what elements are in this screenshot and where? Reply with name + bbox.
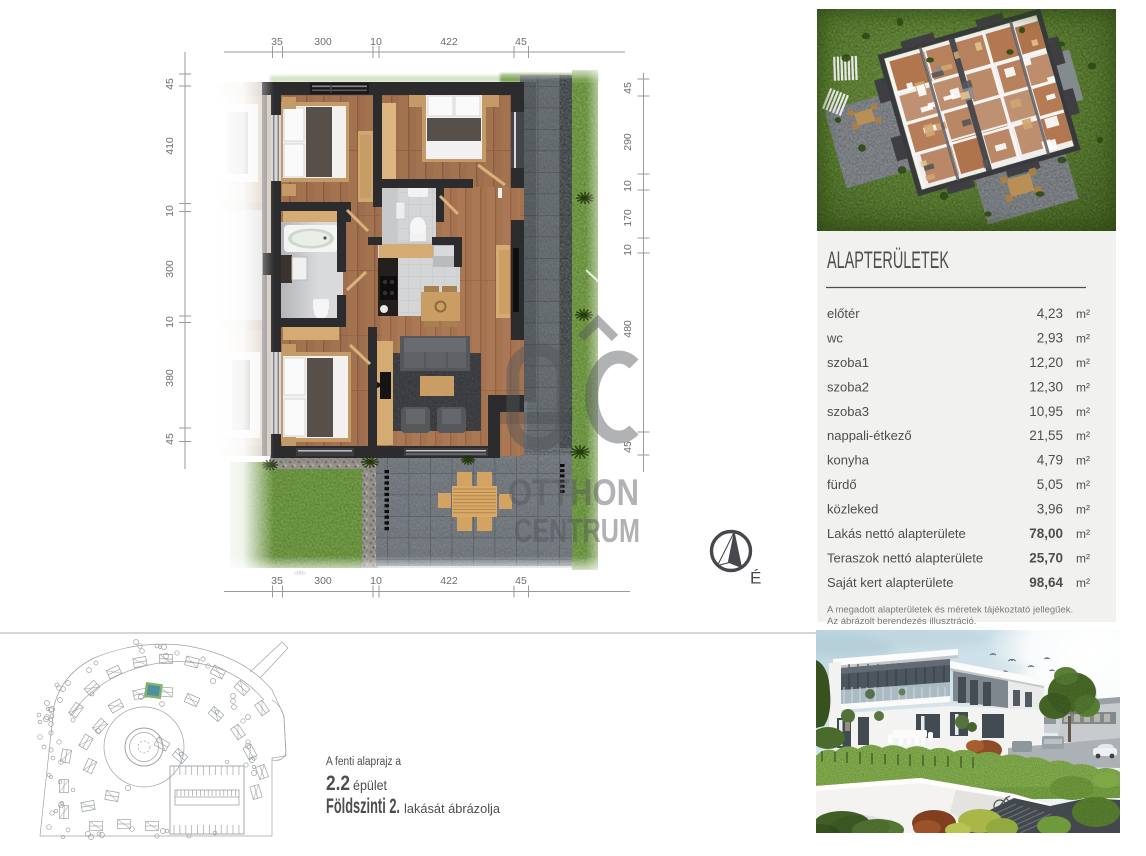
svg-text:szoba1: szoba1 <box>827 355 869 370</box>
svg-text:m²: m² <box>1076 405 1090 419</box>
svg-text:78,00: 78,00 <box>1029 526 1063 541</box>
svg-text:ALAPTERÜLETEK: ALAPTERÜLETEK <box>827 247 949 274</box>
svg-text:A fenti alaprajz a: A fenti alaprajz a <box>326 756 402 768</box>
svg-text:2,93: 2,93 <box>1037 330 1063 345</box>
svg-text:wc: wc <box>826 330 843 345</box>
svg-text:3,96: 3,96 <box>1037 502 1063 517</box>
svg-text:45: 45 <box>515 36 527 48</box>
svg-text:m²: m² <box>1076 527 1090 541</box>
svg-text:Földszinti 2.: Földszinti 2. <box>326 794 400 818</box>
svg-text:25,70: 25,70 <box>1029 551 1063 566</box>
svg-text:45: 45 <box>164 433 176 445</box>
svg-text:4,79: 4,79 <box>1037 453 1063 468</box>
svg-text:422: 422 <box>440 36 458 48</box>
svg-text:Saját kert alapterülete: Saját kert alapterülete <box>827 575 953 590</box>
svg-text:m²: m² <box>1076 503 1090 517</box>
svg-text:m²: m² <box>1076 380 1090 394</box>
svg-text:45: 45 <box>622 82 634 94</box>
svg-text:2.2: 2.2 <box>326 771 350 795</box>
svg-text:CENTRUM: CENTRUM <box>514 512 640 549</box>
svg-text:m²: m² <box>1076 552 1090 566</box>
svg-text:m²: m² <box>1076 429 1090 443</box>
svg-text:előtér: előtér <box>827 306 860 321</box>
svg-text:Lakás nettó alapterülete: Lakás nettó alapterülete <box>827 526 966 541</box>
svg-text:290: 290 <box>622 133 634 151</box>
svg-text:É: É <box>750 569 761 588</box>
svg-text:m²: m² <box>1076 454 1090 468</box>
svg-text:300: 300 <box>314 575 332 587</box>
svg-text:300: 300 <box>314 36 332 48</box>
svg-text:12,20: 12,20 <box>1029 355 1063 370</box>
svg-text:380: 380 <box>164 369 176 387</box>
svg-text:lakását ábrázolja: lakását ábrázolja <box>404 801 501 816</box>
svg-text:szoba3: szoba3 <box>827 404 869 419</box>
svg-text:35: 35 <box>271 575 283 587</box>
svg-text:m²: m² <box>1076 356 1090 370</box>
svg-text:épület: épület <box>353 777 387 793</box>
svg-text:10: 10 <box>370 575 382 587</box>
svg-text:szoba2: szoba2 <box>827 379 869 394</box>
svg-text:12,30: 12,30 <box>1029 379 1063 394</box>
svg-text:5,05: 5,05 <box>1037 477 1063 492</box>
svg-text:35: 35 <box>271 36 283 48</box>
svg-text:m²: m² <box>1076 307 1090 321</box>
svg-text:10: 10 <box>370 36 382 48</box>
svg-text:410: 410 <box>164 137 176 155</box>
svg-text:Teraszok nettó alapterülete: Teraszok nettó alapterülete <box>827 551 983 566</box>
svg-text:m²: m² <box>1076 478 1090 492</box>
svg-text:45: 45 <box>622 441 634 453</box>
svg-text:10,95: 10,95 <box>1029 404 1063 419</box>
svg-text:98,64: 98,64 <box>1029 575 1063 590</box>
svg-text:fürdő: fürdő <box>827 477 857 492</box>
svg-text:A megadott alapterületek és mé: A megadott alapterületek és méretek tájé… <box>827 605 1073 616</box>
svg-text:10: 10 <box>164 205 176 217</box>
svg-text:Az ábrázolt berendezés illuszt: Az ábrázolt berendezés illusztráció. <box>827 616 976 627</box>
svg-text:közleked: közleked <box>827 502 878 517</box>
svg-text:4,23: 4,23 <box>1037 306 1063 321</box>
svg-text:45: 45 <box>515 575 527 587</box>
svg-text:10: 10 <box>622 180 634 192</box>
svg-text:10: 10 <box>164 316 176 328</box>
svg-text:21,55: 21,55 <box>1029 428 1063 443</box>
svg-text:konyha: konyha <box>827 453 870 468</box>
svg-text:m²: m² <box>1076 331 1090 345</box>
svg-text:300: 300 <box>164 260 176 278</box>
svg-text:OTTHON: OTTHON <box>508 472 639 513</box>
svg-text:m²: m² <box>1076 576 1090 590</box>
svg-text:422: 422 <box>440 575 458 587</box>
svg-text:nappali-étkező: nappali-étkező <box>827 428 912 443</box>
svg-text:480: 480 <box>622 320 634 338</box>
svg-text:10: 10 <box>622 244 634 256</box>
svg-text:170: 170 <box>622 209 634 227</box>
svg-text:45: 45 <box>164 78 176 90</box>
